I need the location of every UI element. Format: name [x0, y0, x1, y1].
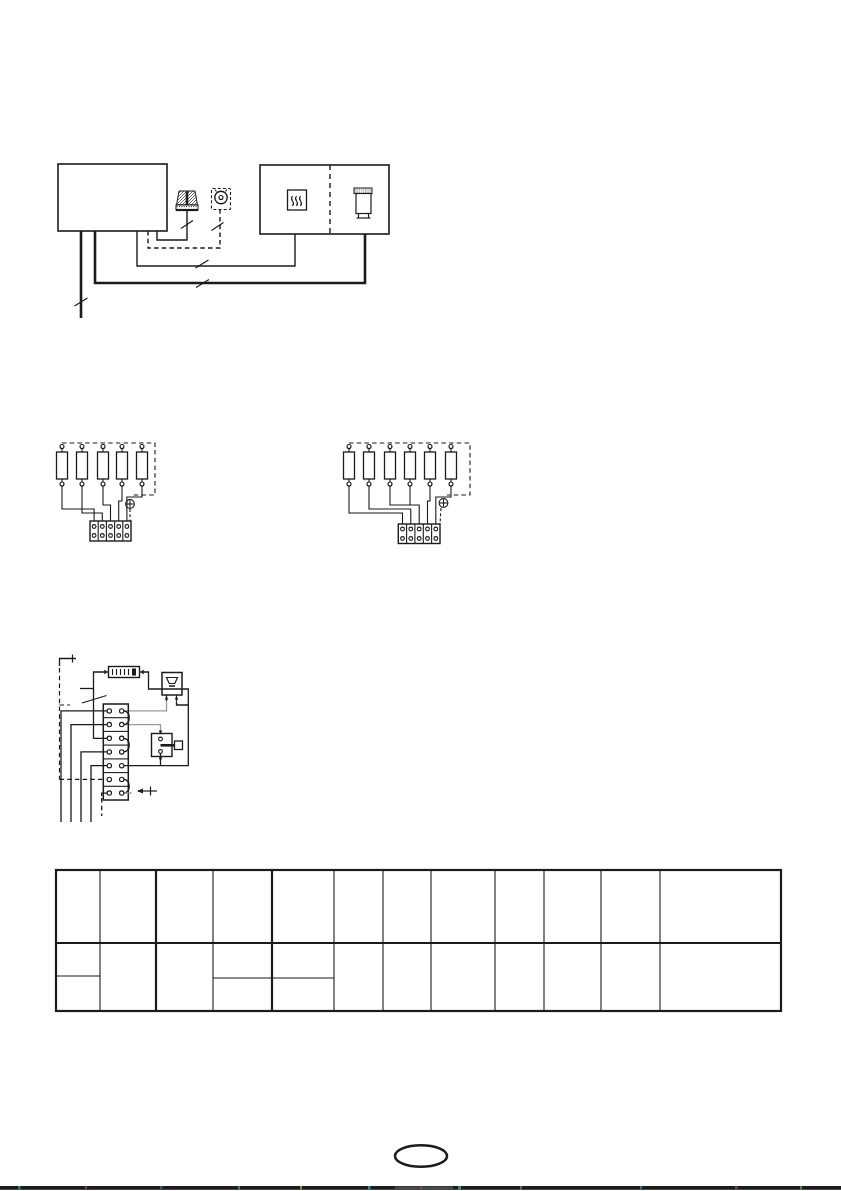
heater-icon — [288, 190, 307, 210]
dial-thermostat-icon — [212, 189, 231, 210]
bell-right-wire — [177, 702, 189, 706]
terminal-block-5way — [90, 521, 131, 541]
exit-wires — [60, 711, 108, 822]
cable-slash-marks — [75, 221, 224, 307]
fan-wires-6 — [349, 486, 451, 524]
appliance-box — [260, 165, 389, 234]
link-bank-6-diagram — [344, 443, 471, 544]
fuse-strip — [104, 667, 144, 678]
mains-wires — [81, 210, 365, 318]
table-border — [56, 870, 781, 1011]
bell-left-wire-gray — [124, 702, 167, 711]
internal-wiring-diagram — [60, 655, 189, 823]
strip-right-wire — [124, 672, 188, 766]
cable-slash-mark — [82, 696, 107, 704]
continuation-arrow-top — [60, 655, 77, 667]
specification-table — [56, 870, 781, 1011]
footer-scan-strip — [0, 1186, 841, 1190]
earth-screw-symbol — [439, 499, 448, 524]
strip-left-wire — [94, 672, 108, 738]
external-wiring-diagram — [58, 164, 389, 318]
cylinder-icon — [354, 188, 372, 218]
group-divider-lines — [156, 870, 272, 1011]
switch-component — [124, 725, 183, 766]
control-box — [58, 164, 167, 231]
split-cell-lines — [56, 976, 334, 978]
manual-page — [0, 0, 841, 1191]
links-5 — [57, 445, 148, 487]
bell-component — [162, 673, 182, 702]
link-bank-5-diagram — [57, 443, 156, 541]
continuation-arrow-bottom — [137, 787, 157, 796]
page-canvas — [0, 0, 841, 1191]
terminal-block-5way — [398, 524, 440, 544]
column-lines — [100, 870, 660, 1011]
terminal-block-7way — [103, 704, 129, 800]
links-6 — [344, 445, 457, 487]
plug-icon — [176, 191, 198, 210]
page-number — [395, 1146, 447, 1167]
